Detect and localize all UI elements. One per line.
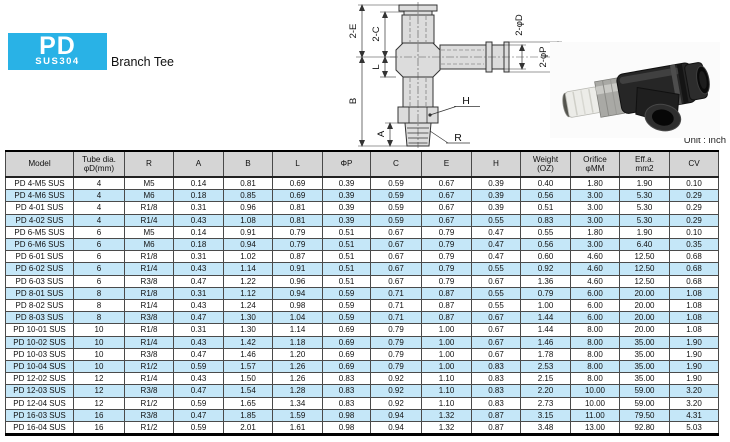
table-cell: PD 6-02 SUS — [6, 263, 74, 275]
table-cell: 5.30 — [620, 214, 670, 226]
table-cell: 0.59 — [371, 214, 422, 226]
table-cell: 0.67 — [472, 275, 521, 287]
table-cell: 35.00 — [620, 373, 670, 385]
table-cell: R1/8 — [125, 287, 174, 299]
table-cell: 0.60 — [521, 251, 571, 263]
table-cell: 0.51 — [521, 202, 571, 214]
table-row: PD 4-01 SUS4R1/80.310.960.810.390.590.67… — [6, 202, 719, 214]
table-cell: 0.67 — [371, 251, 422, 263]
table-cell: 0.47 — [174, 312, 224, 324]
table-cell: 1.20 — [273, 348, 323, 360]
table-cell: 0.56 — [521, 239, 571, 251]
table-cell: 0.39 — [323, 214, 371, 226]
table-cell: 0.67 — [422, 177, 472, 190]
table-cell: 0.79 — [521, 287, 571, 299]
table-cell: 0.39 — [323, 177, 371, 190]
table-cell: 0.59 — [371, 190, 422, 202]
table-cell: 1.50 — [224, 373, 273, 385]
table-cell: 0.71 — [371, 287, 422, 299]
table-cell: 0.67 — [472, 312, 521, 324]
table-cell: 0.69 — [323, 361, 371, 373]
table-cell: 0.67 — [371, 263, 422, 275]
table-cell: 1.59 — [273, 409, 323, 421]
table-cell: R1/4 — [125, 214, 174, 226]
table-cell: M6 — [125, 190, 174, 202]
table-cell: 12 — [74, 373, 125, 385]
table-cell: 0.79 — [422, 263, 472, 275]
table-cell: 1.08 — [670, 287, 719, 299]
table-cell: 20.00 — [620, 312, 670, 324]
table-cell: 1.00 — [422, 324, 472, 336]
table-cell: 2.73 — [521, 397, 571, 409]
dim-label-2c: 2-C — [371, 26, 382, 41]
column-header: R — [125, 151, 174, 177]
table-cell: 1.80 — [571, 177, 620, 190]
table-cell: 0.29 — [670, 214, 719, 226]
table-cell: 1.26 — [273, 361, 323, 373]
table-cell: 4 — [74, 214, 125, 226]
table-cell: PD 10-03 SUS — [6, 348, 74, 360]
table-cell: 1.00 — [422, 348, 472, 360]
table-cell: 0.51 — [323, 275, 371, 287]
brand-name: PD — [8, 35, 107, 57]
table-cell: PD 4-M5 SUS — [6, 177, 74, 190]
brand-badge: PD SUS304 — [8, 33, 107, 70]
table-cell: R3/8 — [125, 312, 174, 324]
table-cell: 0.81 — [224, 177, 273, 190]
table-cell: PD 16-04 SUS — [6, 422, 74, 435]
table-cell: 3.20 — [670, 397, 719, 409]
column-header: Orifice φMM — [571, 151, 620, 177]
table-cell: PD 12-04 SUS — [6, 397, 74, 409]
table-cell: 1.44 — [521, 324, 571, 336]
table-cell: 0.79 — [422, 239, 472, 251]
table-row: PD 16-04 SUS16R1/20.592.011.610.980.941.… — [6, 422, 719, 435]
table-cell: 6.40 — [620, 239, 670, 251]
table-cell: 1.90 — [670, 336, 719, 348]
table-cell: 0.79 — [371, 324, 422, 336]
table-cell: 0.94 — [371, 422, 422, 435]
table-cell: 0.87 — [472, 409, 521, 421]
table-cell: 0.94 — [371, 409, 422, 421]
table-cell: 1.00 — [422, 361, 472, 373]
table-cell: 6.00 — [571, 300, 620, 312]
table-cell: 0.83 — [323, 385, 371, 397]
table-row: PD 16-03 SUS16R3/80.471.851.590.980.941.… — [6, 409, 719, 421]
table-cell: 12 — [74, 397, 125, 409]
table-cell: PD 6-M5 SUS — [6, 226, 74, 238]
table-cell: 0.39 — [323, 190, 371, 202]
table-cell: 1.04 — [273, 312, 323, 324]
table-cell: R1/8 — [125, 324, 174, 336]
table-cell: PD 12-02 SUS — [6, 373, 74, 385]
table-cell: 0.40 — [521, 177, 571, 190]
table-cell: 0.67 — [422, 202, 472, 214]
table-cell: 0.55 — [472, 287, 521, 299]
table-cell: 0.43 — [174, 263, 224, 275]
table-cell: 0.55 — [472, 263, 521, 275]
table-cell: 0.68 — [670, 263, 719, 275]
table-cell: 10 — [74, 348, 125, 360]
table-cell: 2.20 — [521, 385, 571, 397]
table-cell: 0.59 — [371, 177, 422, 190]
table-cell: 0.51 — [323, 226, 371, 238]
dim-label-h: H — [462, 95, 470, 107]
column-header: L — [273, 151, 323, 177]
table-cell: 1.02 — [224, 251, 273, 263]
table-cell: 0.59 — [323, 300, 371, 312]
table-cell: 5.30 — [620, 190, 670, 202]
table-cell: 1.26 — [273, 373, 323, 385]
dim-label-2e: 2-E — [348, 24, 359, 39]
table-cell: 0.14 — [174, 177, 224, 190]
table-cell: 79.50 — [620, 409, 670, 421]
table-cell: 0.47 — [174, 275, 224, 287]
product-photo — [550, 42, 720, 138]
table-cell: PD 8-02 SUS — [6, 300, 74, 312]
table-cell: 35.00 — [620, 336, 670, 348]
table-cell: 1.18 — [273, 336, 323, 348]
table-cell: 1.10 — [422, 385, 472, 397]
table-row: PD 10-04 SUS10R1/20.591.571.260.690.791.… — [6, 361, 719, 373]
extension-lines — [356, 5, 562, 146]
table-row: PD 8-01 SUS8R1/80.311.120.940.590.710.87… — [6, 287, 719, 299]
table-cell: 0.43 — [174, 336, 224, 348]
table-cell: 0.83 — [472, 385, 521, 397]
table-cell: PD 10-02 SUS — [6, 336, 74, 348]
table-cell: 0.79 — [273, 239, 323, 251]
table-row: PD 12-03 SUS12R3/80.471.541.280.830.921.… — [6, 385, 719, 397]
table-cell: 0.59 — [174, 361, 224, 373]
table-cell: 0.29 — [670, 202, 719, 214]
table-cell: 1.90 — [670, 361, 719, 373]
table-cell: 0.92 — [521, 263, 571, 275]
dim-label-r: R — [454, 132, 462, 144]
table-cell: 16 — [74, 422, 125, 435]
table-cell: 1.10 — [422, 373, 472, 385]
table-row: PD 6-03 SUS6R3/80.471.220.960.510.670.79… — [6, 275, 719, 287]
table-cell: 0.98 — [273, 300, 323, 312]
table-cell: 0.94 — [273, 287, 323, 299]
column-header: Model — [6, 151, 74, 177]
table-row: PD 4-M6 SUS4M60.180.850.690.390.590.670.… — [6, 190, 719, 202]
table-cell: 20.00 — [620, 300, 670, 312]
table-cell: 8.00 — [571, 373, 620, 385]
table-row: PD 6-M6 SUS6M60.180.940.790.510.670.790.… — [6, 239, 719, 251]
table-cell: R1/8 — [125, 202, 174, 214]
table-cell: R3/8 — [125, 409, 174, 421]
spec-table-head: ModelTube dia. φD(mm)RABLΦPCEHWeight (OZ… — [6, 151, 719, 177]
table-cell: 0.83 — [323, 397, 371, 409]
table-cell: 8.00 — [571, 361, 620, 373]
table-cell: 0.47 — [174, 409, 224, 421]
table-cell: 0.71 — [371, 300, 422, 312]
table-cell: 0.87 — [422, 312, 472, 324]
table-cell: M5 — [125, 226, 174, 238]
table-cell: 0.18 — [174, 190, 224, 202]
table-cell: 16 — [74, 409, 125, 421]
table-cell: 1.36 — [521, 275, 571, 287]
table-cell: 0.31 — [174, 251, 224, 263]
table-cell: 1.00 — [521, 300, 571, 312]
table-cell: 0.55 — [521, 226, 571, 238]
table-cell: 0.87 — [273, 251, 323, 263]
table-cell: 1.80 — [571, 226, 620, 238]
table-cell: 0.91 — [273, 263, 323, 275]
table-cell: 0.10 — [670, 226, 719, 238]
table-cell: 1.42 — [224, 336, 273, 348]
table-row: PD 12-02 SUS12R1/40.431.501.260.830.921.… — [6, 373, 719, 385]
table-cell: PD 4-01 SUS — [6, 202, 74, 214]
table-cell: 20.00 — [620, 324, 670, 336]
table-cell: 0.39 — [323, 202, 371, 214]
table-cell: 0.67 — [472, 324, 521, 336]
table-cell: 8 — [74, 300, 125, 312]
table-cell: 0.67 — [371, 275, 422, 287]
table-cell: 1.65 — [224, 397, 273, 409]
table-cell: 0.67 — [422, 190, 472, 202]
table-cell: 13.00 — [571, 422, 620, 435]
table-cell: R3/8 — [125, 275, 174, 287]
table-row: PD 6-M5 SUS6M50.140.910.790.510.670.790.… — [6, 226, 719, 238]
table-cell: 0.81 — [273, 202, 323, 214]
table-cell: 0.79 — [273, 226, 323, 238]
table-cell: 0.31 — [174, 287, 224, 299]
table-cell: 0.51 — [323, 239, 371, 251]
table-cell: PD 10-04 SUS — [6, 361, 74, 373]
column-header: H — [472, 151, 521, 177]
table-cell: 0.67 — [371, 226, 422, 238]
table-cell: 1.24 — [224, 300, 273, 312]
table-cell: 11.00 — [571, 409, 620, 421]
table-cell: 6.00 — [571, 312, 620, 324]
table-cell: 0.47 — [174, 385, 224, 397]
table-cell: 10 — [74, 361, 125, 373]
table-cell: R1/4 — [125, 336, 174, 348]
table-cell: 59.00 — [620, 385, 670, 397]
table-cell: 6.00 — [571, 287, 620, 299]
table-cell: 35.00 — [620, 348, 670, 360]
table-cell: 0.69 — [323, 348, 371, 360]
table-cell: 1.00 — [422, 336, 472, 348]
table-cell: 3.20 — [670, 385, 719, 397]
table-cell: 1.08 — [670, 300, 719, 312]
table-cell: 12.50 — [620, 275, 670, 287]
table-cell: 0.79 — [371, 361, 422, 373]
table-cell: 0.94 — [224, 239, 273, 251]
table-cell: 1.08 — [670, 324, 719, 336]
table-cell: 0.83 — [472, 397, 521, 409]
table-row: PD 10-01 SUS10R1/80.311.301.140.690.791.… — [6, 324, 719, 336]
table-cell: 0.18 — [174, 239, 224, 251]
table-cell: 0.56 — [521, 190, 571, 202]
table-row: PD 6-02 SUS6R1/40.431.140.910.510.670.79… — [6, 263, 719, 275]
table-cell: 0.79 — [371, 336, 422, 348]
table-row: PD 8-02 SUS8R1/40.431.240.980.590.710.87… — [6, 300, 719, 312]
table-cell: 12.50 — [620, 251, 670, 263]
table-row: PD 12-04 SUS12R1/20.591.651.340.830.921.… — [6, 397, 719, 409]
table-cell: 12.50 — [620, 263, 670, 275]
table-cell: 92.80 — [620, 422, 670, 435]
table-cell: 0.68 — [670, 251, 719, 263]
table-cell: 1.22 — [224, 275, 273, 287]
dim-label-b: B — [348, 98, 359, 104]
table-cell: 0.43 — [174, 214, 224, 226]
table-cell: 0.43 — [174, 300, 224, 312]
table-cell: 6 — [74, 239, 125, 251]
table-cell: 0.39 — [472, 190, 521, 202]
table-cell: 0.59 — [371, 202, 422, 214]
table-cell: 0.79 — [371, 348, 422, 360]
dim-label-a: A — [376, 130, 387, 137]
column-header: ΦP — [323, 151, 371, 177]
table-cell: 8 — [74, 287, 125, 299]
table-cell: 0.85 — [224, 190, 273, 202]
table-cell: 59.00 — [620, 397, 670, 409]
table-cell: PD 6-03 SUS — [6, 275, 74, 287]
table-cell: R1/4 — [125, 263, 174, 275]
table-cell: R3/8 — [125, 385, 174, 397]
table-cell: 0.55 — [472, 300, 521, 312]
table-cell: 8 — [74, 312, 125, 324]
table-cell: 20.00 — [620, 287, 670, 299]
table-cell: 0.83 — [472, 361, 521, 373]
table-cell: 0.51 — [323, 263, 371, 275]
table-cell: R1/2 — [125, 422, 174, 435]
table-cell: PD 12-03 SUS — [6, 385, 74, 397]
table-cell: 1.30 — [224, 312, 273, 324]
table-cell: 0.39 — [472, 177, 521, 190]
table-cell: 0.35 — [670, 239, 719, 251]
table-cell: 6 — [74, 275, 125, 287]
table-cell: 3.15 — [521, 409, 571, 421]
table-cell: PD 8-03 SUS — [6, 312, 74, 324]
table-row: PD 8-03 SUS8R3/80.471.301.040.590.710.87… — [6, 312, 719, 324]
table-cell: 0.71 — [371, 312, 422, 324]
table-cell: 0.69 — [323, 324, 371, 336]
table-cell: 6 — [74, 226, 125, 238]
table-cell: 8.00 — [571, 336, 620, 348]
table-cell: 0.96 — [273, 275, 323, 287]
table-cell: 0.79 — [422, 226, 472, 238]
table-cell: 4 — [74, 177, 125, 190]
table-cell: 1.30 — [224, 324, 273, 336]
table-cell: 0.47 — [472, 226, 521, 238]
table-cell: 4.60 — [571, 251, 620, 263]
table-cell: 0.31 — [174, 202, 224, 214]
product-name: Branch Tee — [111, 55, 174, 69]
table-row: PD 6-01 SUS6R1/80.311.020.870.510.670.79… — [6, 251, 719, 263]
table-cell: 0.59 — [174, 422, 224, 435]
table-cell: 4.31 — [670, 409, 719, 421]
table-cell: 0.91 — [224, 226, 273, 238]
dim-label-2d: 2-φD — [514, 14, 525, 36]
table-cell: 0.69 — [273, 177, 323, 190]
table-cell: M6 — [125, 239, 174, 251]
table-cell: 0.67 — [371, 239, 422, 251]
table-cell: 6 — [74, 251, 125, 263]
table-cell: 5.03 — [670, 422, 719, 435]
table-cell: 10 — [74, 324, 125, 336]
table-cell: 0.98 — [323, 409, 371, 421]
table-cell: 1.46 — [521, 336, 571, 348]
column-header: C — [371, 151, 422, 177]
table-cell: 1.78 — [521, 348, 571, 360]
table-row: PD 10-03 SUS10R3/80.471.461.200.690.791.… — [6, 348, 719, 360]
table-cell: 0.79 — [422, 275, 472, 287]
table-cell: 0.67 — [422, 214, 472, 226]
column-header: Tube dia. φD(mm) — [74, 151, 125, 177]
table-cell: R1/4 — [125, 373, 174, 385]
table-cell: 0.98 — [323, 422, 371, 435]
table-cell: 2.01 — [224, 422, 273, 435]
column-header: CV — [670, 151, 719, 177]
table-cell: PD 10-01 SUS — [6, 324, 74, 336]
table-cell: 1.46 — [224, 348, 273, 360]
table-cell: 4 — [74, 190, 125, 202]
table-cell: 2.15 — [521, 373, 571, 385]
table-row: PD 10-02 SUS10R1/40.431.421.180.690.791.… — [6, 336, 719, 348]
table-cell: 4.60 — [571, 263, 620, 275]
table-cell: 0.59 — [323, 287, 371, 299]
technical-drawing: 2-E B 2-C L A 2-φD 2-φP H R — [268, 0, 568, 150]
table-cell: 0.43 — [174, 373, 224, 385]
table-cell: 3.00 — [571, 214, 620, 226]
column-header: E — [422, 151, 472, 177]
table-cell: 1.28 — [273, 385, 323, 397]
table-cell: 1.08 — [224, 214, 273, 226]
table-cell: 10 — [74, 336, 125, 348]
table-cell: 1.08 — [670, 312, 719, 324]
spec-table-body: PD 4-M5 SUS4M50.140.810.690.390.590.670.… — [6, 177, 719, 435]
table-cell: 0.92 — [371, 373, 422, 385]
table-cell: 1.85 — [224, 409, 273, 421]
table-cell: 10.00 — [571, 385, 620, 397]
table-cell: 8.00 — [571, 324, 620, 336]
table-cell: 1.32 — [422, 409, 472, 421]
table-cell: PD 4-M6 SUS — [6, 190, 74, 202]
table-row: PD 4-02 SUS4R1/40.431.080.810.390.590.67… — [6, 214, 719, 226]
table-cell: 10.00 — [571, 397, 620, 409]
table-cell: 0.87 — [422, 287, 472, 299]
table-cell: 0.29 — [670, 190, 719, 202]
table-cell: 3.00 — [571, 190, 620, 202]
table-cell: 0.69 — [273, 190, 323, 202]
table-cell: 5.30 — [620, 202, 670, 214]
table-cell: R1/2 — [125, 397, 174, 409]
dim-label-2p: 2-φP — [538, 47, 549, 68]
table-cell: 0.14 — [174, 226, 224, 238]
table-cell: 4.60 — [571, 275, 620, 287]
table-cell: PD 4-02 SUS — [6, 214, 74, 226]
table-cell: R1/2 — [125, 361, 174, 373]
table-cell: 0.96 — [224, 202, 273, 214]
table-cell: 12 — [74, 385, 125, 397]
table-cell: 0.83 — [472, 373, 521, 385]
column-header: A — [174, 151, 224, 177]
dimension-labels: 2-E B 2-C L A 2-φD 2-φP H R — [348, 14, 549, 144]
table-cell: 0.31 — [174, 324, 224, 336]
table-cell: PD 8-01 SUS — [6, 287, 74, 299]
dimension-lines — [362, 5, 558, 146]
table-cell: 1.61 — [273, 422, 323, 435]
table-cell: 1.12 — [224, 287, 273, 299]
table-cell: 1.57 — [224, 361, 273, 373]
table-cell: 0.39 — [472, 202, 521, 214]
table-cell: 8.00 — [571, 348, 620, 360]
table-cell: 2.53 — [521, 361, 571, 373]
table-cell: 6 — [74, 263, 125, 275]
